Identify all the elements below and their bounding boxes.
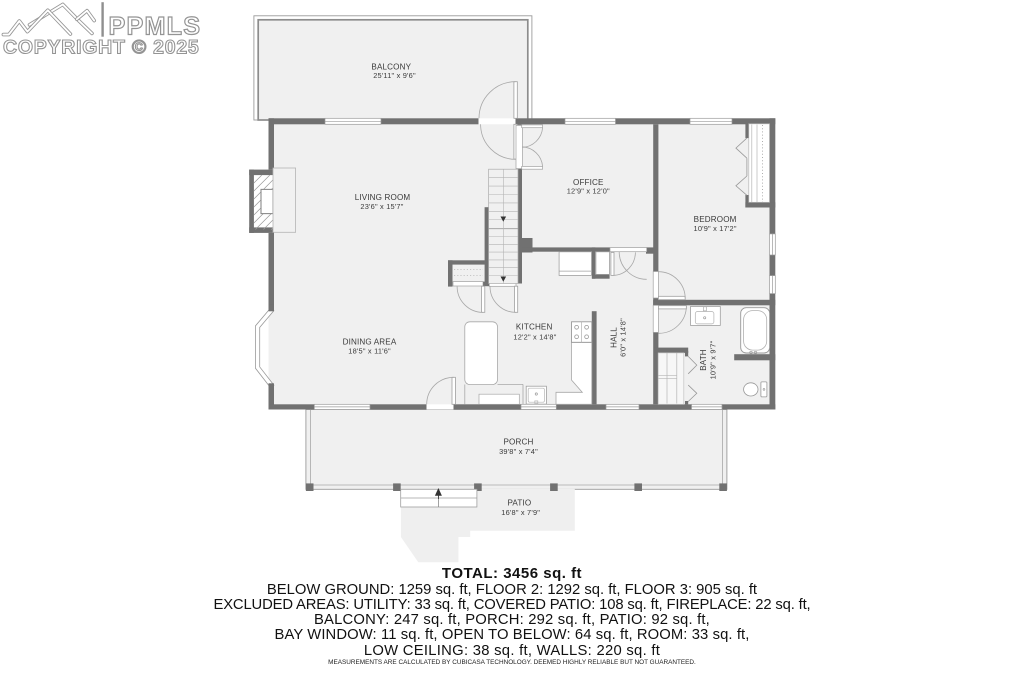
svg-text:BAY WINDOW: 11 sq. ft, OPEN TO: BAY WINDOW: 11 sq. ft, OPEN TO BELOW: 64… <box>275 627 750 643</box>
svg-text:10'9" x 17'2": 10'9" x 17'2" <box>694 224 737 233</box>
svg-text:MEASUREMENTS ARE CALCULATED BY: MEASUREMENTS ARE CALCULATED BY CUBICASA … <box>328 659 696 666</box>
svg-text:25'11" x 9'6": 25'11" x 9'6" <box>373 71 416 80</box>
svg-text:LOW CEILING: 38 sq. ft, WALLS:: LOW CEILING: 38 sq. ft, WALLS: 220 sq. f… <box>364 643 660 659</box>
svg-text:BEDROOM: BEDROOM <box>694 215 737 224</box>
svg-text:6'0" x 14'8": 6'0" x 14'8" <box>619 318 628 357</box>
svg-text:12'2" x 14'8": 12'2" x 14'8" <box>513 333 556 342</box>
svg-text:18'5" x 11'6": 18'5" x 11'6" <box>348 346 391 355</box>
svg-text:EXCLUDED AREAS: UTILITY: 33 sq: EXCLUDED AREAS: UTILITY: 33 sq. ft, COVE… <box>213 597 810 613</box>
svg-text:23'6" x 15'7": 23'6" x 15'7" <box>360 202 403 211</box>
svg-text:LIVING ROOM: LIVING ROOM <box>355 193 411 202</box>
svg-text:BELOW GROUND: 1259 sq. ft, FLO: BELOW GROUND: 1259 sq. ft, FLOOR 2: 1292… <box>267 582 757 598</box>
svg-text:12'9" x 12'0": 12'9" x 12'0" <box>567 186 610 195</box>
svg-text:BALCONY: 247 sq. ft, PORCH: 29: BALCONY: 247 sq. ft, PORCH: 292 sq. ft, … <box>314 612 710 628</box>
svg-text:10'9" x 9'7": 10'9" x 9'7" <box>708 340 717 379</box>
svg-text:PORCH: PORCH <box>504 438 534 447</box>
svg-text:PATIO: PATIO <box>507 498 531 507</box>
svg-text:DINING AREA: DINING AREA <box>343 338 397 347</box>
svg-text:TOTAL: 3456 sq. ft: TOTAL: 3456 sq. ft <box>442 565 582 582</box>
svg-text:BATH: BATH <box>699 349 708 371</box>
svg-text:16'8" x 7'9": 16'8" x 7'9" <box>501 508 540 517</box>
svg-text:COPYRIGHT © 2025: COPYRIGHT © 2025 <box>3 37 200 59</box>
svg-text:39'8" x 7'4": 39'8" x 7'4" <box>499 447 538 456</box>
svg-text:HALL: HALL <box>609 327 618 348</box>
svg-text:KITCHEN: KITCHEN <box>516 323 553 332</box>
